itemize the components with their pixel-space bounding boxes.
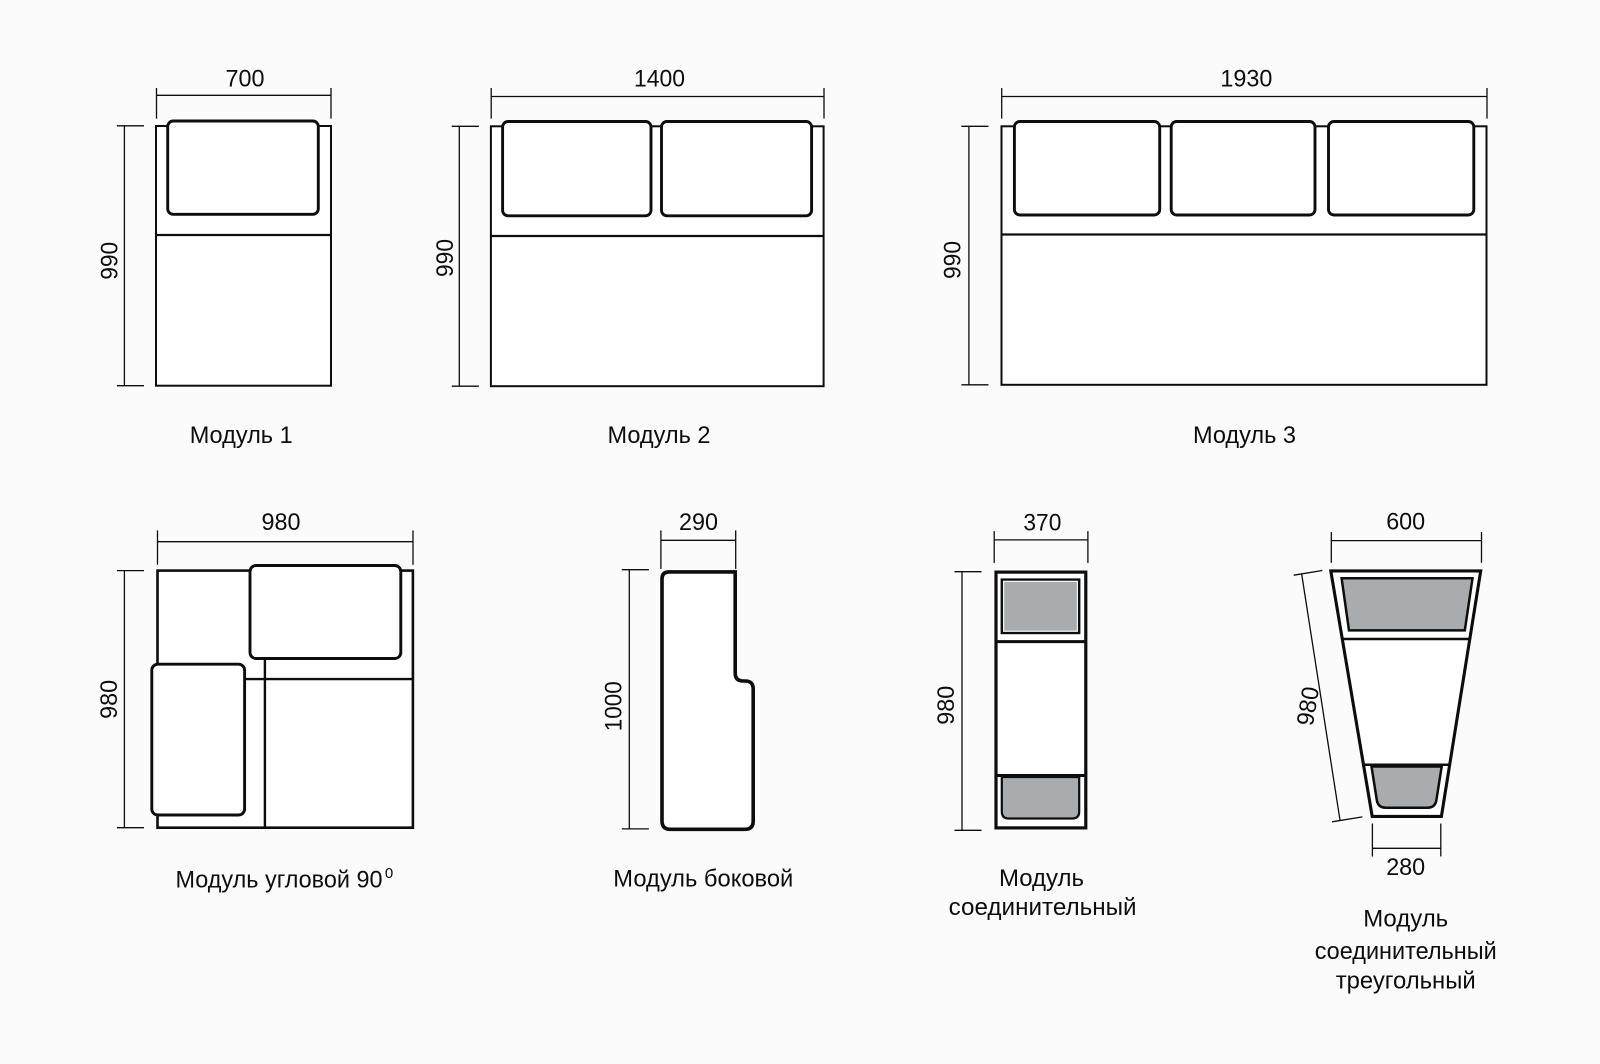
- svg-text:Модуль угловой 90: Модуль угловой 90: [176, 867, 383, 894]
- svg-text:треугольный: треугольный: [1336, 968, 1476, 995]
- svg-text:990: 990: [940, 241, 967, 279]
- svg-text:1000: 1000: [600, 681, 627, 731]
- svg-text:700: 700: [226, 65, 265, 92]
- svg-text:980: 980: [262, 509, 301, 536]
- svg-text:Модуль 2: Модуль 2: [608, 422, 711, 449]
- svg-text:280: 280: [1386, 854, 1425, 881]
- svg-text:Модуль: Модуль: [999, 865, 1084, 892]
- svg-text:990: 990: [97, 242, 124, 280]
- svg-text:600: 600: [1386, 509, 1425, 536]
- svg-text:0: 0: [385, 865, 393, 882]
- svg-text:Модуль 1: Модуль 1: [190, 422, 293, 449]
- svg-text:980: 980: [96, 680, 123, 719]
- svg-text:Модуль 3: Модуль 3: [1193, 422, 1296, 449]
- svg-text:290: 290: [679, 509, 718, 536]
- svg-text:990: 990: [432, 239, 459, 277]
- svg-text:1930: 1930: [1220, 65, 1272, 92]
- svg-text:980: 980: [933, 686, 960, 725]
- svg-text:соединительный: соединительный: [1315, 938, 1497, 965]
- svg-text:1400: 1400: [634, 65, 685, 92]
- svg-text:Модуль боковой: Модуль боковой: [613, 865, 793, 892]
- svg-text:370: 370: [1023, 510, 1061, 537]
- svg-text:соединительный: соединительный: [949, 894, 1137, 921]
- svg-text:Модуль: Модуль: [1363, 906, 1448, 933]
